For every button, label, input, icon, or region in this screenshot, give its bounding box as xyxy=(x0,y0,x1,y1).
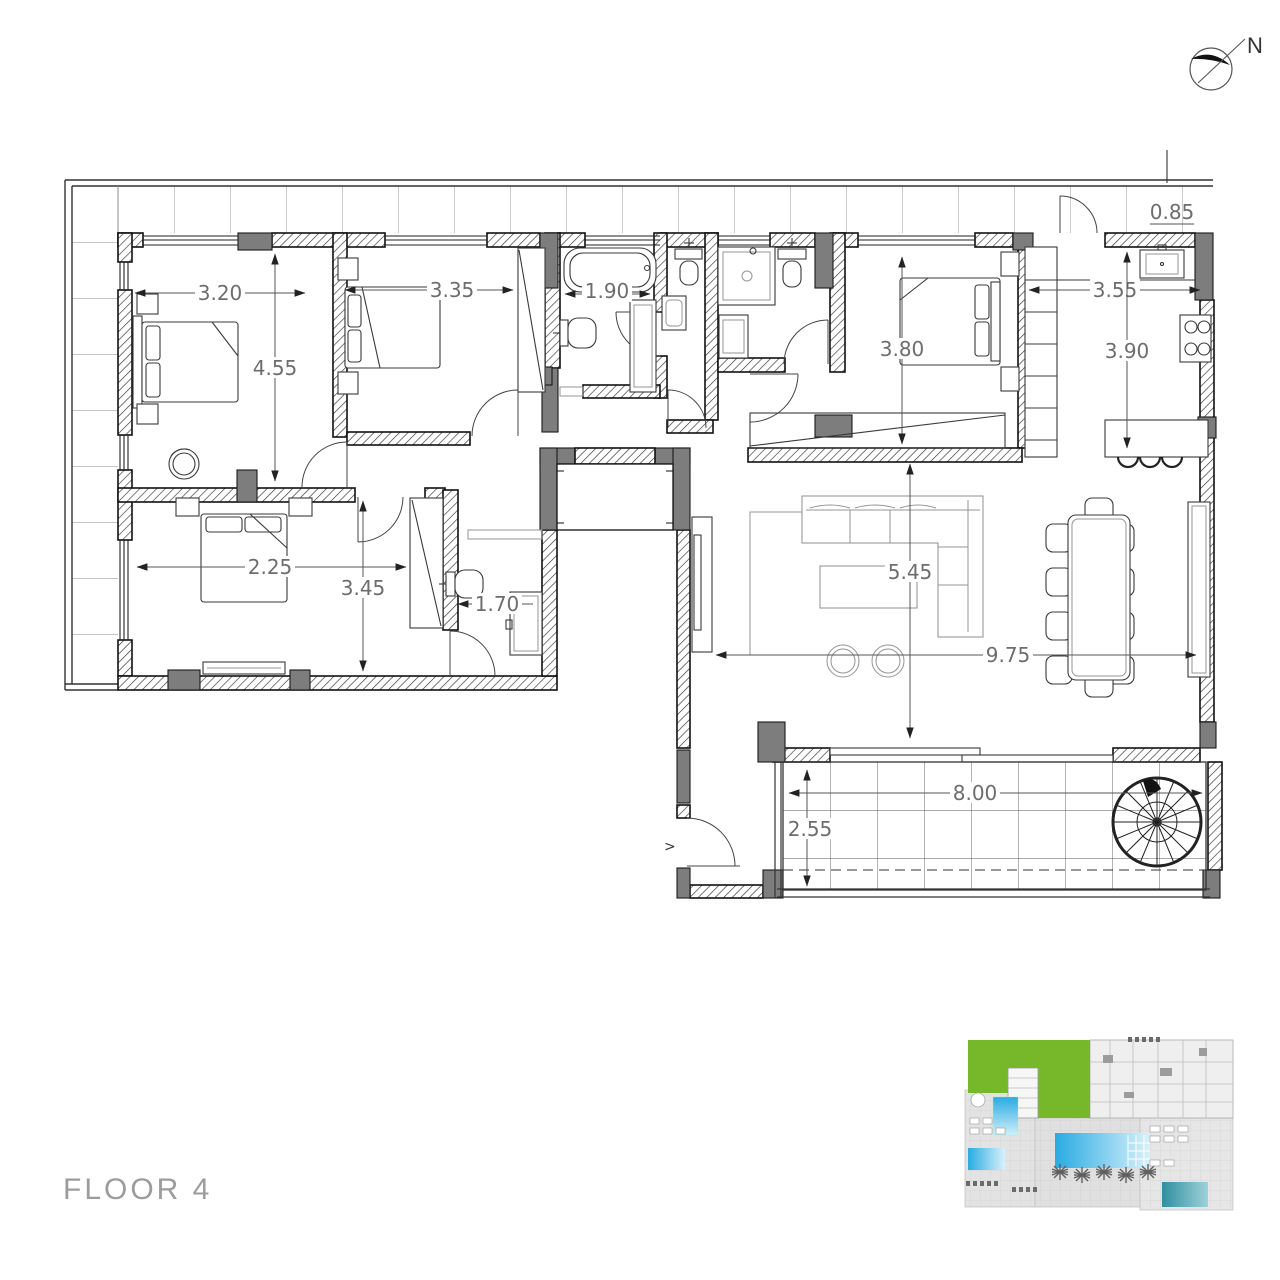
window-bedroom1 xyxy=(143,236,238,245)
nightstand xyxy=(176,498,199,516)
svg-text:3.55: 3.55 xyxy=(1093,278,1138,302)
floor-plan-drawing: N xyxy=(0,0,1280,1280)
living-room xyxy=(692,496,1210,697)
svg-text:2.55: 2.55 xyxy=(788,817,833,841)
north-compass-icon: N xyxy=(1190,33,1263,90)
bed-double-1 xyxy=(133,316,238,408)
door-bedroom3 xyxy=(750,374,798,422)
washbasin-bathroom2 xyxy=(719,315,748,358)
window-bathroom2 xyxy=(718,236,770,245)
closet-bedroom3 xyxy=(750,413,1005,448)
dimension-bedroom1-depth: 4.55 xyxy=(250,254,300,481)
vanity-bathroom1 xyxy=(630,300,656,392)
shower-bathroom2 xyxy=(718,247,775,305)
wardrobe-bedroom2 xyxy=(518,248,545,392)
key-plan-building xyxy=(1090,1040,1233,1118)
kitchen-island-bar xyxy=(1105,420,1208,467)
svg-text:3.35: 3.35 xyxy=(430,278,475,302)
door-bedroom4 xyxy=(358,497,403,542)
toilet-bathroom1 xyxy=(553,318,596,348)
stove-cooktop xyxy=(1180,315,1211,362)
bed-double-2 xyxy=(345,287,440,368)
window-bedroom3 xyxy=(858,236,975,245)
svg-text:3.45: 3.45 xyxy=(341,576,386,600)
shaft xyxy=(540,448,690,530)
dimension-bedroom4-depth: 3.45 xyxy=(338,501,388,671)
door-bathroom3 xyxy=(450,631,495,676)
kitchen-sink xyxy=(1140,245,1184,278)
window-left-3 xyxy=(120,540,128,640)
svg-text:1.90: 1.90 xyxy=(585,279,630,303)
key-plan-pool-left xyxy=(968,1148,1005,1170)
kitchen-tall-cabinets xyxy=(1025,247,1057,457)
tv-unit xyxy=(692,517,712,652)
armchair-round xyxy=(169,449,199,479)
nightstand xyxy=(289,498,312,516)
floor-title: FLOOR 4 xyxy=(63,1173,212,1206)
svg-text:8.00: 8.00 xyxy=(953,781,998,805)
bathroom-2 xyxy=(718,238,806,358)
bar-stool xyxy=(1118,457,1138,467)
sink-wc xyxy=(662,296,686,330)
key-plan-pool-teal xyxy=(1162,1182,1208,1207)
wardrobe-bedroom4 xyxy=(410,498,443,628)
key-plan-jacuzzi xyxy=(971,1093,985,1107)
dining-set xyxy=(1046,498,1134,697)
bathroom-1 xyxy=(553,248,656,396)
north-label: N xyxy=(1247,33,1263,58)
rug-outline xyxy=(750,512,802,655)
nightstand xyxy=(338,258,358,280)
bedroom-2 xyxy=(338,248,545,394)
svg-text:0.85: 0.85 xyxy=(1150,200,1195,224)
window-left-2 xyxy=(120,435,128,470)
window-bedroom2 xyxy=(385,236,487,245)
dimension-bedroom1-width: 3.20 xyxy=(135,281,305,305)
sideboard xyxy=(1188,502,1210,677)
bedroom-1 xyxy=(133,294,238,479)
door-terrace-exit xyxy=(687,818,740,866)
svg-text:9.75: 9.75 xyxy=(986,643,1031,667)
door-bathroom2 xyxy=(784,320,828,364)
svg-text:1.70: 1.70 xyxy=(475,592,520,616)
key-plan xyxy=(965,1037,1233,1210)
bar-stool xyxy=(1140,457,1160,467)
window-bathroom1 xyxy=(585,236,660,245)
bath1-shelf xyxy=(560,387,583,396)
nightstand xyxy=(1001,367,1019,391)
door-bedroom1 xyxy=(302,442,347,487)
bar-stool xyxy=(1162,457,1182,467)
pouf-chairs xyxy=(827,645,904,677)
sliding-door-terrace xyxy=(830,748,1113,762)
svg-text:3.20: 3.20 xyxy=(198,281,243,305)
dimension-entrance-width: 0.85 xyxy=(1150,200,1195,224)
window-left-1 xyxy=(120,262,128,290)
wc xyxy=(662,238,702,330)
spiral-staircase xyxy=(1113,778,1201,866)
svg-text:5.45: 5.45 xyxy=(888,560,933,584)
dresser-bedroom4 xyxy=(203,662,285,674)
section-marker: > xyxy=(664,839,676,855)
svg-text:4.55: 4.55 xyxy=(253,356,298,380)
vanity-bathroom3 xyxy=(468,530,542,539)
lower-terrace: > xyxy=(664,762,1210,898)
svg-text:3.90: 3.90 xyxy=(1105,339,1150,363)
nightstand xyxy=(338,372,358,394)
nightstand xyxy=(137,404,158,424)
nightstand xyxy=(137,294,158,314)
svg-text:2.25: 2.25 xyxy=(248,555,293,579)
bedroom-4 xyxy=(176,498,443,674)
door-bedroom2 xyxy=(472,390,518,436)
svg-text:3.80: 3.80 xyxy=(880,337,925,361)
nightstand xyxy=(1001,252,1019,276)
